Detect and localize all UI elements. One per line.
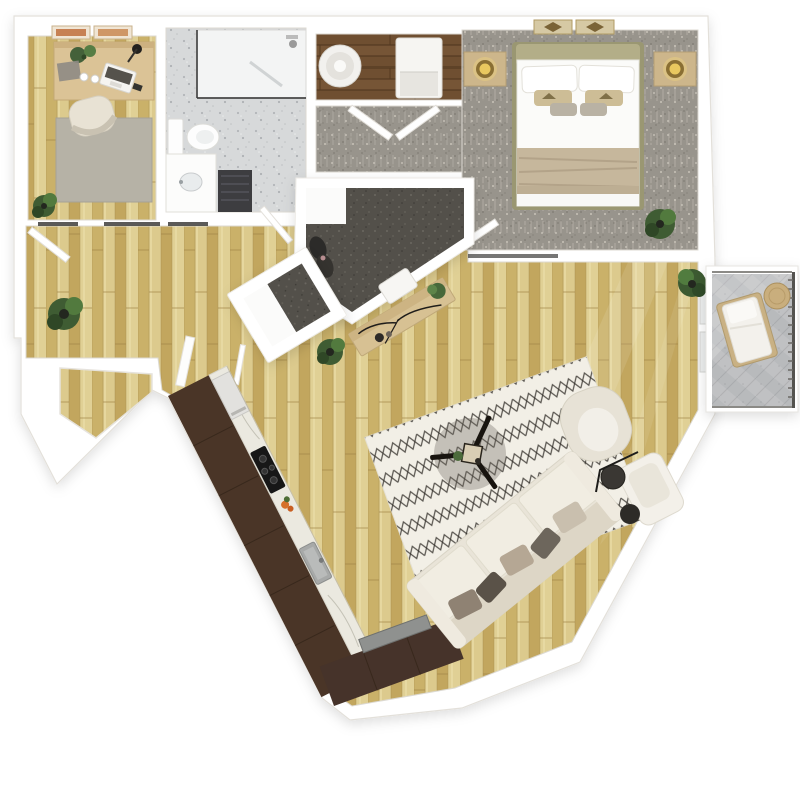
nightstand-left bbox=[464, 52, 506, 86]
laundry-closet bbox=[316, 34, 462, 100]
shower-head bbox=[289, 40, 297, 48]
corridor-carpet-texture bbox=[316, 106, 468, 172]
living-plant bbox=[678, 269, 706, 297]
bathroom-room bbox=[166, 28, 306, 244]
washer-dryer bbox=[396, 38, 442, 98]
office-room bbox=[28, 26, 156, 220]
floor-plan-image: 3D apartment floor plan — top-down rende… bbox=[0, 0, 800, 800]
closet-corridor bbox=[316, 105, 468, 172]
table-plant bbox=[453, 451, 463, 461]
doorway-threshold bbox=[468, 254, 558, 258]
side-table-2 bbox=[620, 504, 640, 524]
bed-foot bbox=[517, 194, 639, 206]
coffee-cup bbox=[80, 73, 88, 81]
closet-shelf bbox=[306, 188, 346, 224]
throw-blanket bbox=[517, 148, 639, 194]
shower bbox=[196, 30, 306, 98]
bath-mat bbox=[218, 170, 252, 212]
hall-thresholds bbox=[38, 222, 208, 226]
patio-table bbox=[764, 283, 790, 309]
balcony bbox=[706, 266, 798, 412]
nightstand-right bbox=[654, 52, 696, 86]
coffee-cup-2 bbox=[91, 75, 99, 83]
laundry-hamper bbox=[319, 45, 361, 87]
bedroom-room bbox=[450, 20, 698, 258]
mousepad bbox=[57, 61, 81, 82]
floorplan-svg: 3D apartment floor plan — top-down rende… bbox=[0, 0, 800, 800]
vanity-sink bbox=[166, 154, 216, 212]
bed bbox=[512, 42, 644, 210]
